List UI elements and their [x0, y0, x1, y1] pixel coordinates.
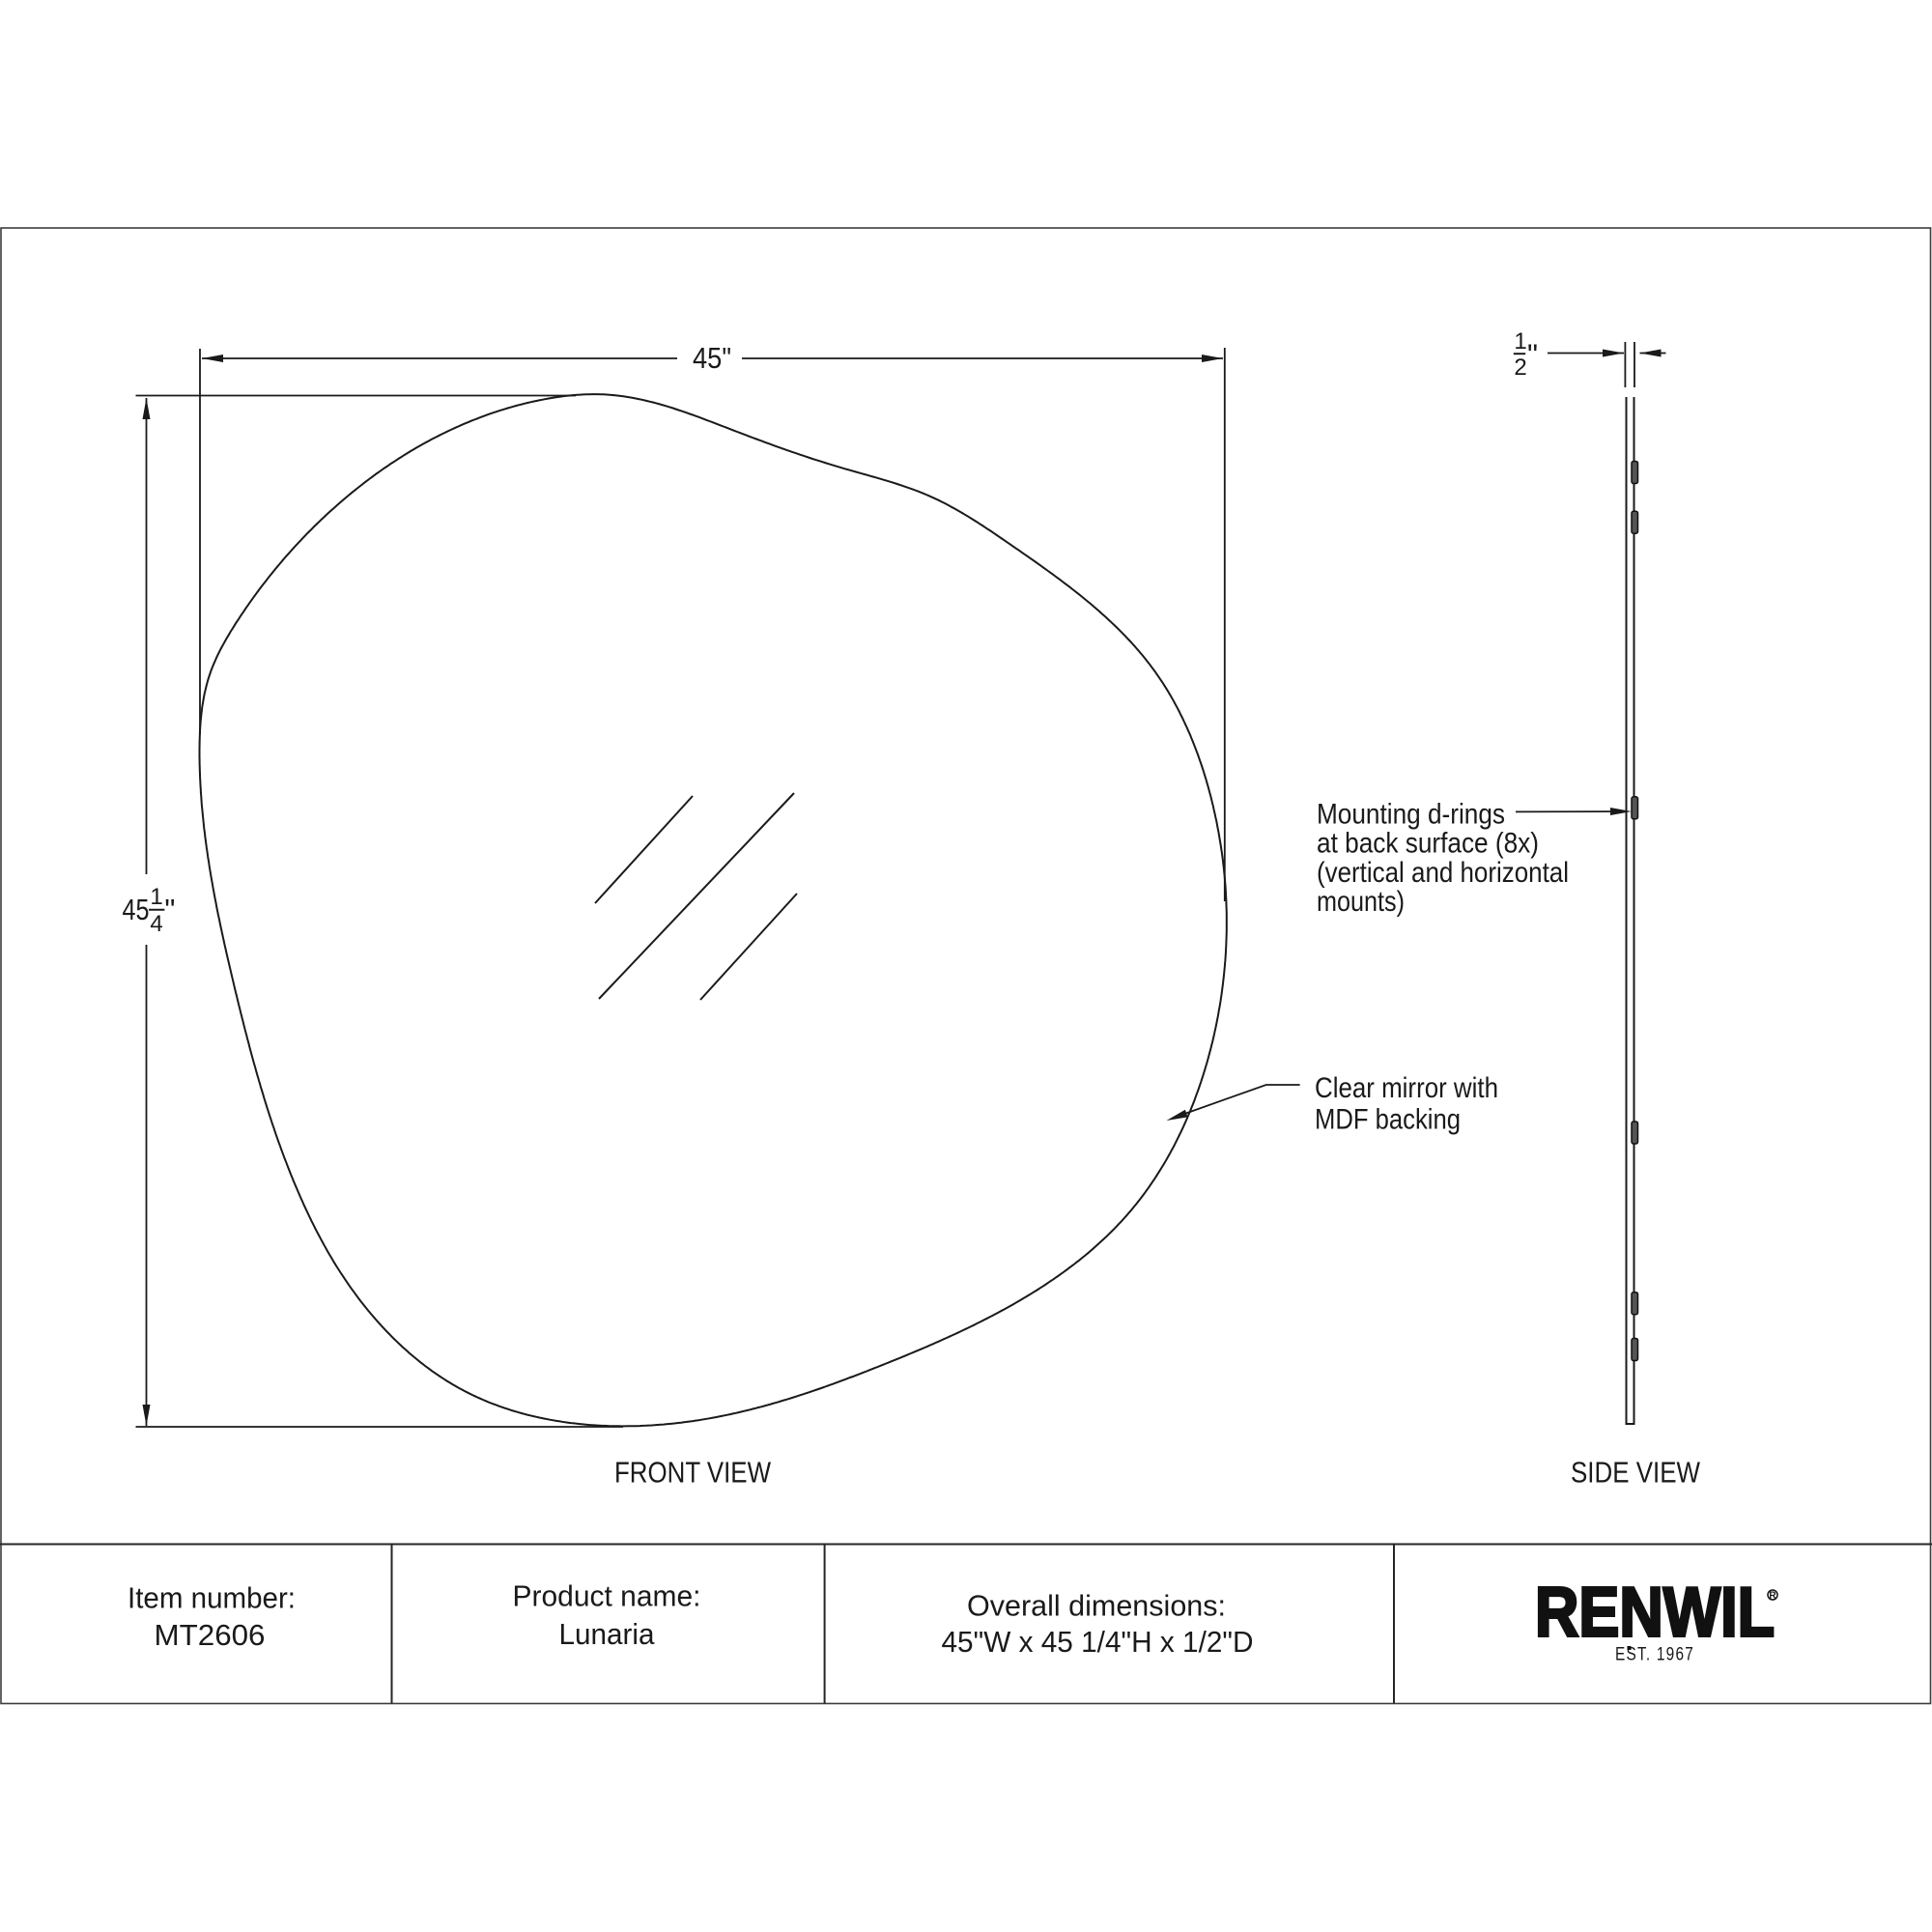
- svg-text:1: 1: [150, 884, 162, 910]
- svg-text:MDF backing: MDF backing: [1315, 1103, 1461, 1135]
- svg-text:Lunaria: Lunaria: [559, 1617, 656, 1651]
- svg-text:4: 4: [150, 911, 162, 937]
- svg-text:1: 1: [1514, 328, 1526, 355]
- svg-text:at back surface (8x): at back surface (8x): [1317, 828, 1539, 860]
- svg-text:45": 45": [693, 341, 731, 375]
- svg-text:RENWIL: RENWIL: [1535, 1575, 1775, 1652]
- svg-text:": ": [164, 893, 175, 926]
- svg-text:Mounting d-rings: Mounting d-rings: [1317, 799, 1505, 831]
- svg-text:MT2606: MT2606: [155, 1618, 266, 1652]
- svg-text:45: 45: [123, 893, 150, 926]
- svg-text:Clear mirror with: Clear mirror with: [1315, 1072, 1498, 1104]
- svg-text:EST. 1967: EST. 1967: [1615, 1645, 1694, 1665]
- svg-text:mounts): mounts): [1317, 886, 1405, 918]
- svg-text:45"W x 45 1/4"H x 1/2"D: 45"W x 45 1/4"H x 1/2"D: [942, 1625, 1254, 1659]
- svg-text:Product name:: Product name:: [513, 1578, 701, 1612]
- svg-text:FRONT VIEW: FRONT VIEW: [614, 1456, 772, 1490]
- svg-text:Overall dimensions:: Overall dimensions:: [967, 1589, 1226, 1623]
- svg-text:R: R: [1769, 1591, 1776, 1602]
- svg-text:2: 2: [1514, 355, 1526, 381]
- svg-text:": ": [1527, 338, 1538, 372]
- svg-text:Item number:: Item number:: [128, 1580, 296, 1614]
- svg-text:(vertical and horizontal: (vertical and horizontal: [1317, 857, 1569, 889]
- svg-text:SIDE VIEW: SIDE VIEW: [1571, 1456, 1701, 1490]
